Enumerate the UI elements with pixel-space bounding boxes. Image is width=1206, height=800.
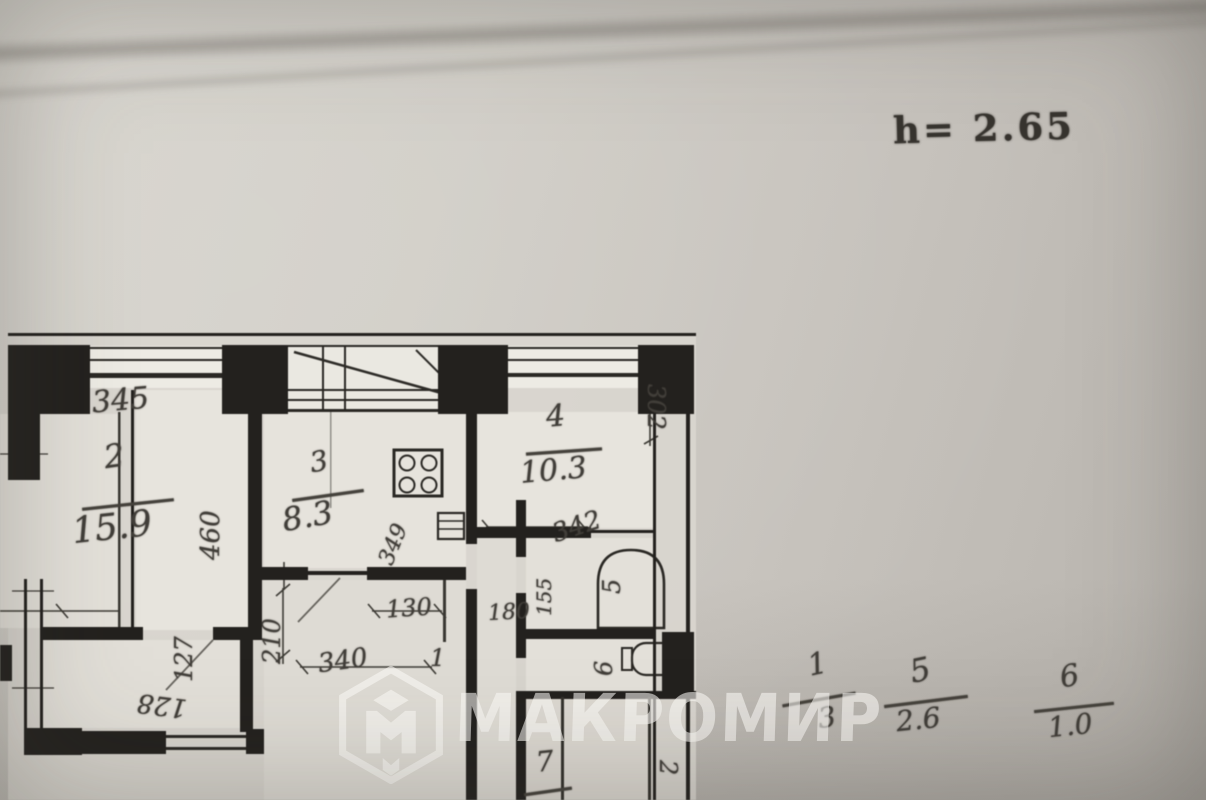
scanned-floorplan-document: 345 2 15.9 460 3 8.3 349 4 10.3 302 342 … xyxy=(0,0,1206,800)
fraction3-area: 1.0 xyxy=(1047,710,1094,743)
fraction1-area: 3 xyxy=(816,703,838,733)
floorplan-photo: 345 2 15.9 460 3 8.3 349 4 10.3 302 342 … xyxy=(0,0,1206,800)
area-fractions: 1 3 5 2.6 6 1.0 xyxy=(0,0,1206,800)
fraction1-number: 1 xyxy=(805,648,830,681)
fraction2-number: 5 xyxy=(907,652,934,688)
fraction2-area: 2.6 xyxy=(895,704,942,737)
fraction3-number: 6 xyxy=(1058,661,1082,694)
